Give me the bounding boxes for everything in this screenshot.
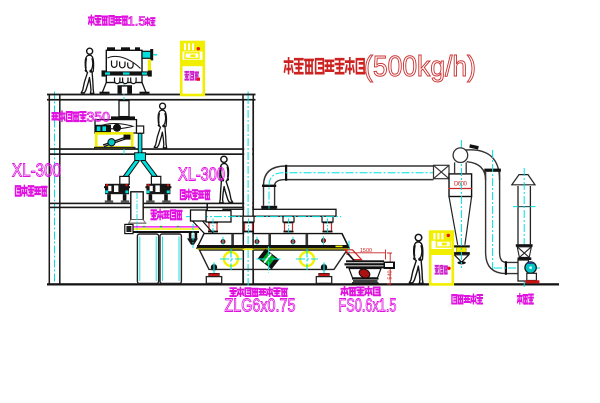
svg-text:FS0.6x1.5: FS0.6x1.5 bbox=[339, 296, 397, 316]
svg-text:1500: 1500 bbox=[360, 248, 372, 254]
svg-text:540: 540 bbox=[388, 270, 394, 279]
svg-text:XL-300: XL-300 bbox=[178, 165, 225, 185]
svg-text:D600: D600 bbox=[454, 182, 468, 188]
svg-text:350: 350 bbox=[87, 109, 111, 125]
svg-text:1.5: 1.5 bbox=[128, 14, 146, 29]
svg-text:ZLG6x0.75: ZLG6x0.75 bbox=[225, 296, 296, 316]
svg-text:(500kg/h): (500kg/h) bbox=[364, 51, 476, 83]
svg-text:XL-300: XL-300 bbox=[12, 160, 61, 181]
